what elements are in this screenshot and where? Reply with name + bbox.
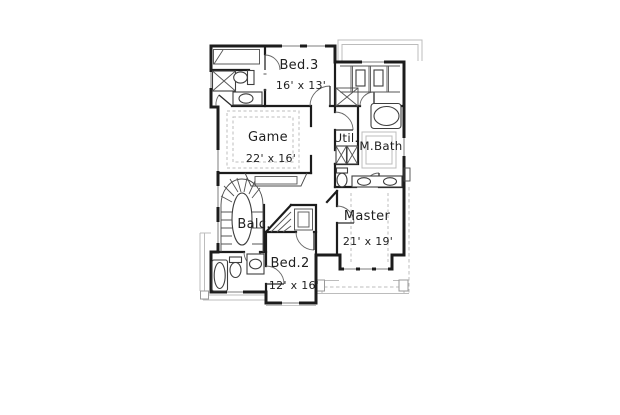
bathtub-fixture (212, 260, 228, 291)
vanity-sinks-fixture (352, 176, 402, 187)
curved-stairs (221, 178, 263, 252)
shower-fixture (213, 71, 236, 91)
room-mbath-label: M.Bath (359, 139, 402, 153)
room-bed2-label: Bed.2 (270, 256, 309, 271)
room-game-label: Game (248, 130, 288, 145)
room-util-label: Util. (333, 131, 358, 145)
room-bed2-dims: 12' x 16' (269, 279, 319, 292)
sink-fixture (233, 92, 262, 105)
room-bed3-dims: 16' x 13' (276, 79, 326, 92)
toilet-fixture (337, 168, 348, 187)
room-game-dims: 22' x 16' (246, 152, 296, 165)
toilet-fixture (234, 71, 254, 85)
room-master-dims: 21' x 19' (343, 235, 393, 248)
linen-shelf (336, 88, 358, 106)
bathtub-fixture (371, 104, 401, 129)
room-bed3-label: Bed.3 (279, 58, 318, 73)
hall-closet-unit (295, 209, 313, 230)
toilet-fixture (230, 257, 242, 278)
floor-plan: Bed.3 16' x 13' Game 22' x 16' Util. M.B… (0, 0, 620, 415)
bathroom-bottom-left (212, 254, 264, 291)
washer-dryer-fixture (336, 146, 358, 164)
room-balc-label: Balc. (237, 217, 270, 232)
room-master-label: Master (344, 209, 391, 224)
bathroom-top-left (213, 71, 263, 106)
closet-shelving (214, 50, 260, 65)
sink-fixture (247, 254, 264, 274)
floor-plan-canvas: Bed.3 16' x 13' Game 22' x 16' Util. M.B… (0, 0, 620, 415)
